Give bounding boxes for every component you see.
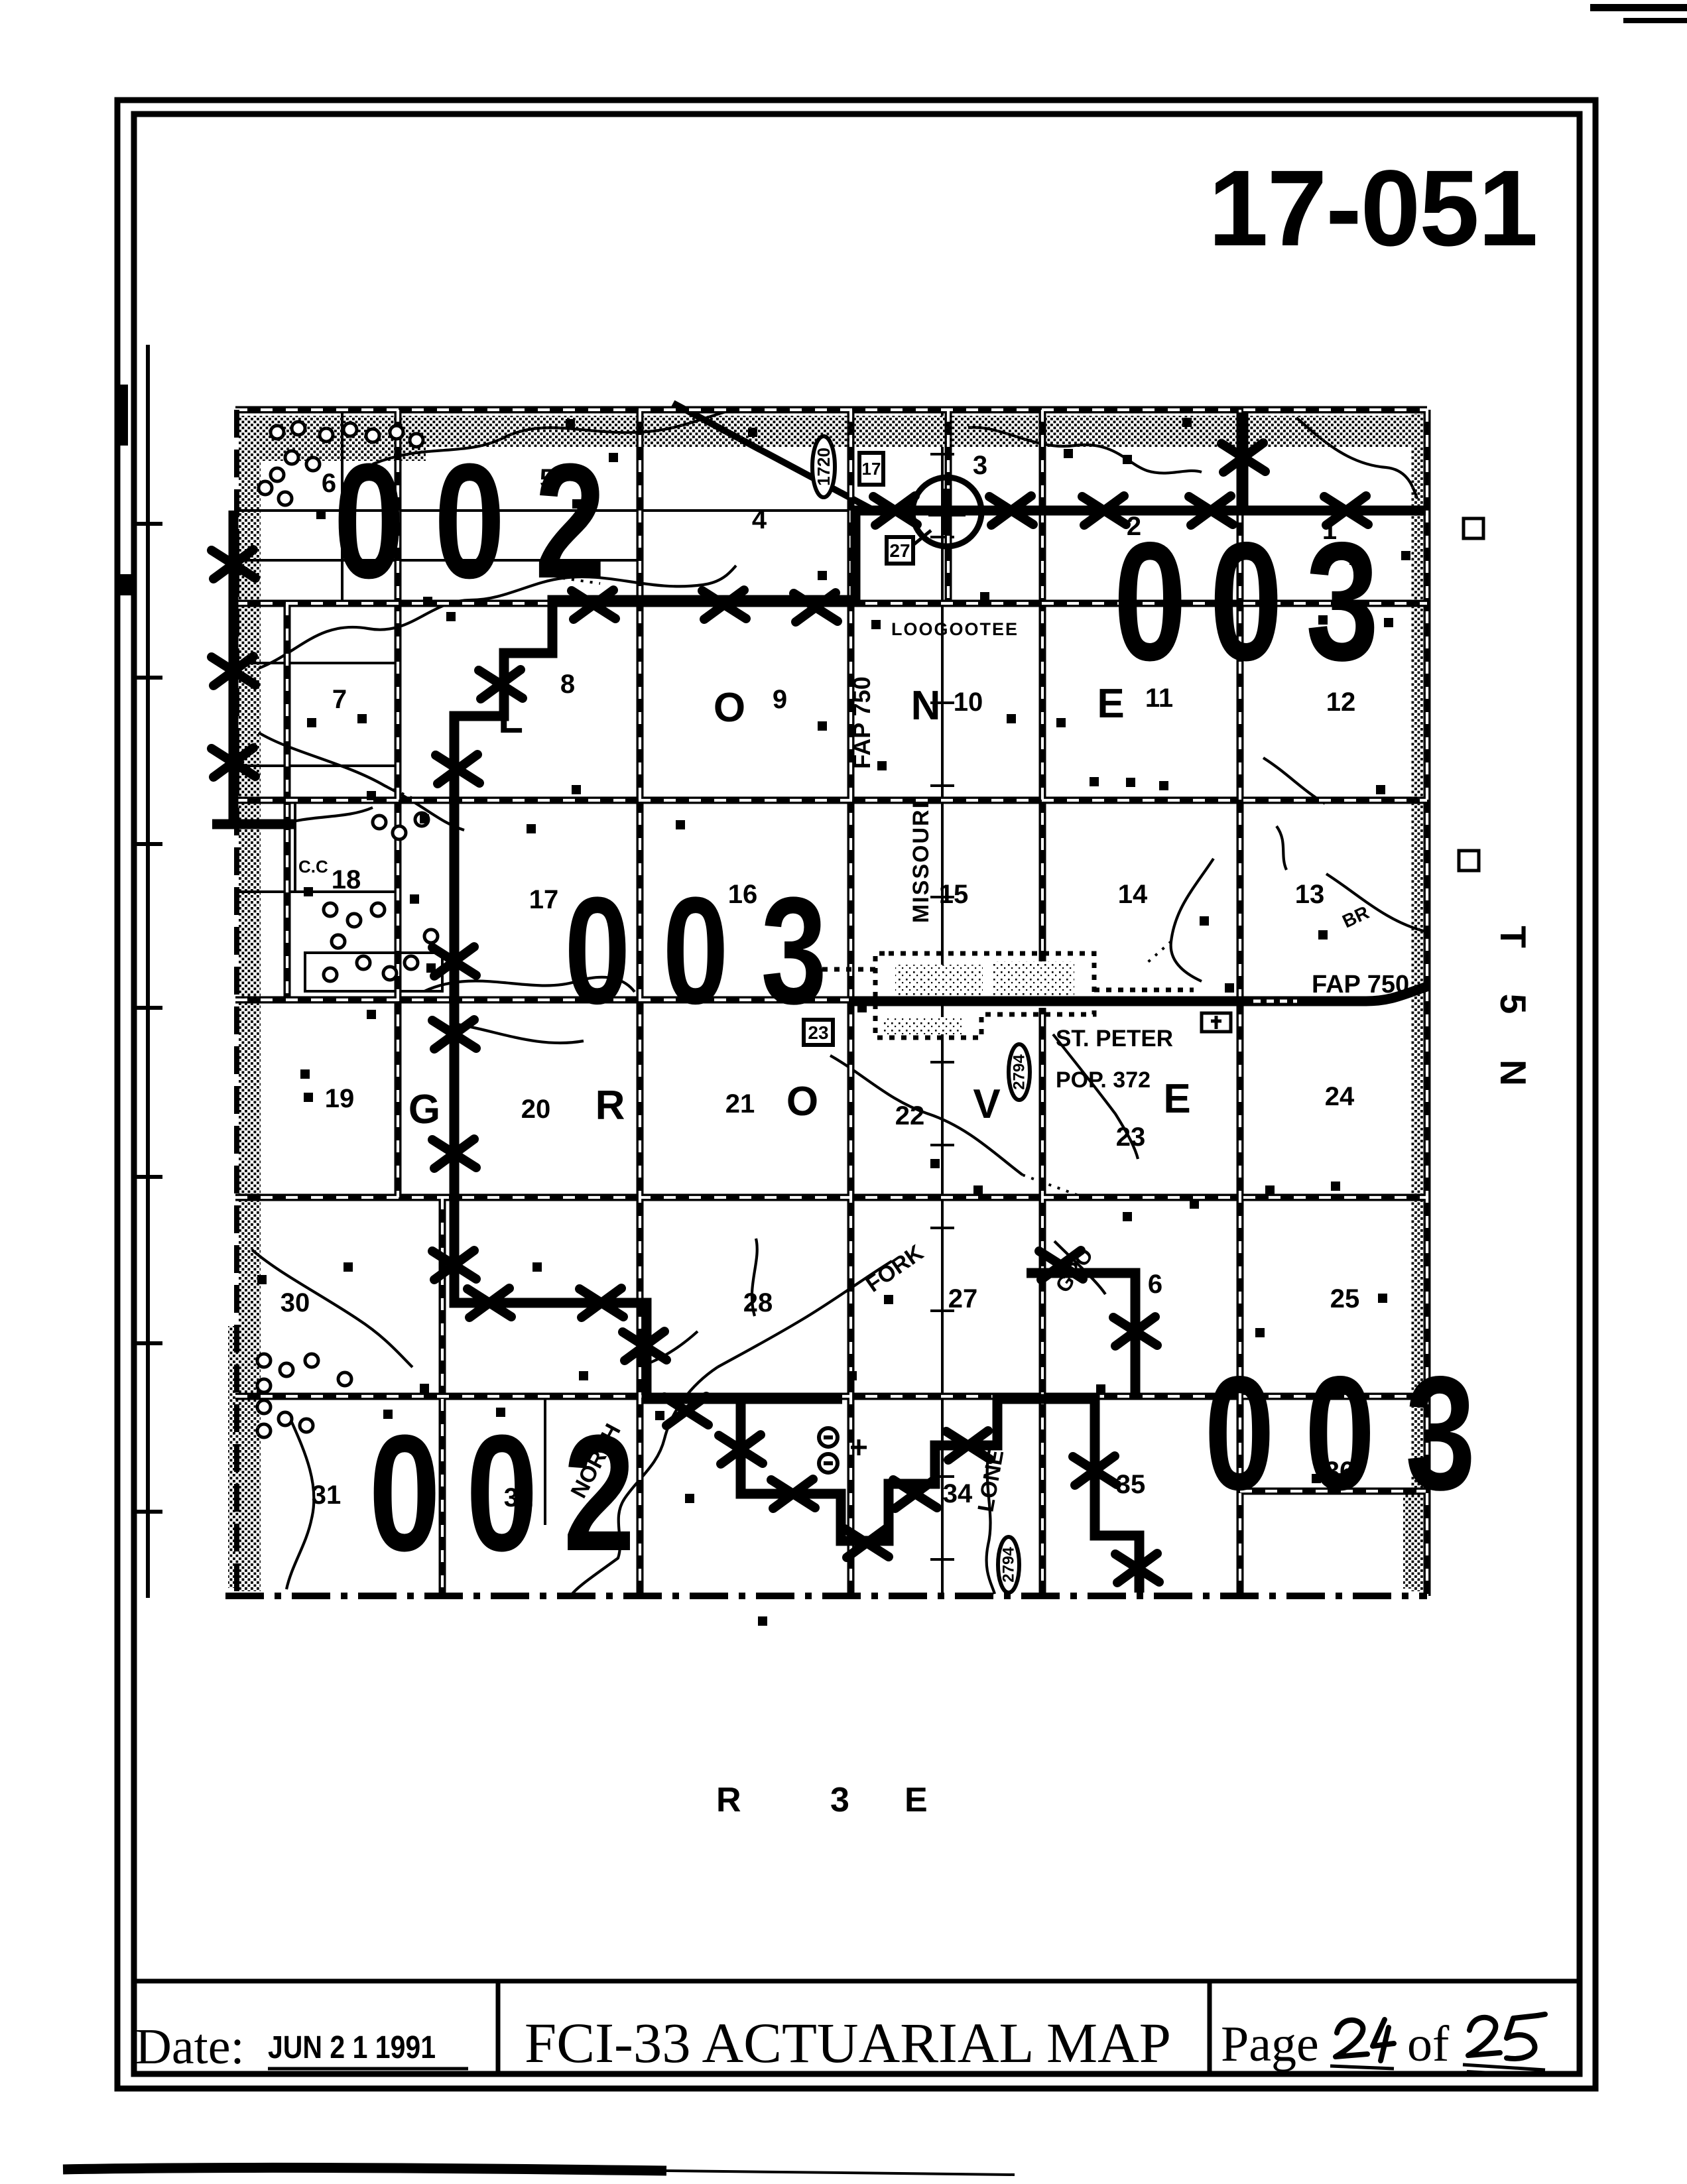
svg-text:G: G xyxy=(408,1087,440,1132)
svg-text:ST. PETER: ST. PETER xyxy=(1056,1026,1173,1052)
svg-text:7: 7 xyxy=(332,685,347,714)
svg-text:3: 3 xyxy=(830,1781,849,1819)
svg-text:R: R xyxy=(716,1781,741,1819)
svg-text:27: 27 xyxy=(948,1284,978,1313)
svg-text:17: 17 xyxy=(862,459,881,479)
svg-text:30: 30 xyxy=(281,1288,310,1317)
svg-text:15: 15 xyxy=(939,880,969,909)
svg-text:N: N xyxy=(1493,1060,1534,1086)
svg-text:C.C: C.C xyxy=(298,857,328,877)
svg-text:1720: 1720 xyxy=(814,448,834,486)
svg-text:31: 31 xyxy=(312,1481,342,1510)
svg-text:FAP 750: FAP 750 xyxy=(848,676,875,768)
svg-text:V: V xyxy=(973,1081,1000,1127)
svg-text:28: 28 xyxy=(743,1288,773,1317)
svg-text:E: E xyxy=(905,1781,928,1819)
svg-text:23: 23 xyxy=(1116,1122,1146,1152)
svg-text:L: L xyxy=(498,696,523,742)
svg-text:Date:: Date: xyxy=(135,2019,245,2075)
svg-text:MISSOURI: MISSOURI xyxy=(908,801,934,923)
svg-text:003: 003 xyxy=(564,865,859,1036)
svg-text:R: R xyxy=(595,1083,625,1128)
svg-text:17: 17 xyxy=(529,885,559,914)
svg-text:18: 18 xyxy=(332,865,361,894)
svg-text:2794: 2794 xyxy=(1000,1547,1018,1583)
svg-text:002: 002 xyxy=(369,1400,660,1586)
svg-text:34: 34 xyxy=(943,1479,973,1508)
svg-text:6: 6 xyxy=(1148,1270,1162,1299)
svg-text:35: 35 xyxy=(1116,1470,1146,1499)
svg-text:5: 5 xyxy=(1493,994,1534,1014)
svg-text:27: 27 xyxy=(889,540,910,561)
svg-text:22: 22 xyxy=(895,1101,925,1130)
svg-text:O: O xyxy=(786,1079,818,1124)
svg-text:T: T xyxy=(1493,926,1534,948)
svg-text:21: 21 xyxy=(725,1089,755,1119)
svg-text:19: 19 xyxy=(325,1084,355,1113)
svg-text:003: 003 xyxy=(1113,507,1402,696)
svg-text:10: 10 xyxy=(954,688,983,717)
svg-text:N: N xyxy=(911,683,941,729)
svg-text:003: 003 xyxy=(1204,1342,1506,1524)
svg-text:17-051: 17-051 xyxy=(1208,147,1537,269)
svg-text:9: 9 xyxy=(773,685,787,714)
svg-text:20: 20 xyxy=(521,1095,551,1124)
svg-text:4: 4 xyxy=(752,505,767,534)
svg-text:POP. 372: POP. 372 xyxy=(1056,1067,1151,1093)
svg-text:3: 3 xyxy=(973,451,987,480)
svg-text:LOOGOOTEE: LOOGOOTEE xyxy=(891,619,1019,639)
svg-text:Page: Page xyxy=(1221,2016,1319,2072)
svg-text:JUN 2 1 1991: JUN 2 1 1991 xyxy=(268,2030,436,2065)
svg-text:E: E xyxy=(1163,1076,1190,1122)
svg-text:24: 24 xyxy=(1325,1082,1355,1111)
svg-text:2794: 2794 xyxy=(1011,1054,1029,1090)
svg-text:25: 25 xyxy=(1330,1284,1360,1313)
svg-text:O: O xyxy=(714,685,745,731)
svg-text:002: 002 xyxy=(334,429,635,613)
svg-text:13: 13 xyxy=(1295,880,1325,909)
svg-text:of: of xyxy=(1407,2016,1450,2072)
svg-text:14: 14 xyxy=(1118,880,1148,909)
svg-text:FCI-33 ACTUARIAL MAP: FCI-33 ACTUARIAL MAP xyxy=(525,2011,1171,2075)
svg-text:FAP 750: FAP 750 xyxy=(1312,971,1409,999)
svg-text:8: 8 xyxy=(560,670,575,699)
